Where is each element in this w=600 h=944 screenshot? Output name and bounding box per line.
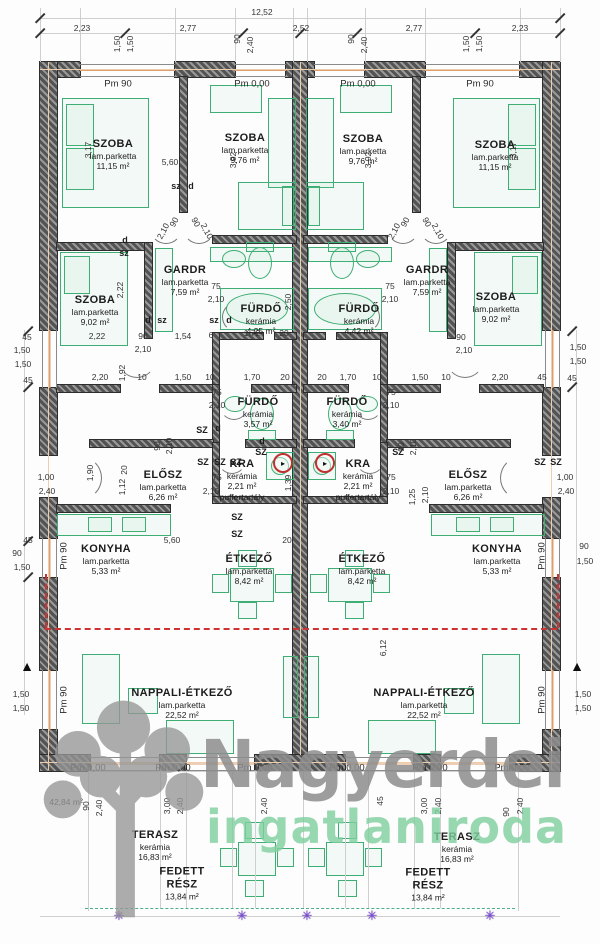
layer-tag: d (122, 235, 128, 245)
room-area: 8,42 m² (225, 577, 272, 587)
room-label: FÜRDŐkerámia3,40 m² (326, 396, 367, 430)
room-name: SZOBA (222, 132, 269, 145)
dimension-label: 5,60 (162, 157, 179, 167)
room-material: kerámia (336, 471, 381, 481)
dimension-label: 2,40 (245, 37, 255, 54)
window (80, 64, 175, 77)
furniture (88, 517, 112, 532)
room-material: lam.parketta (472, 556, 522, 566)
wall-segment (448, 243, 543, 250)
layer-tag: d (215, 423, 221, 433)
layer-tag: SZ (231, 512, 243, 522)
room-name: SZOBA (72, 294, 119, 307)
room-material: lam.parketta (445, 482, 492, 492)
dimension-label: 1,92 (117, 365, 127, 382)
dimension-label: 5,60 (164, 535, 181, 545)
room-label: GARDRlam.parketta7,59 m² (404, 264, 451, 298)
dimension-label: 2,10 (164, 438, 174, 455)
dimension-label: 90 (456, 332, 465, 342)
dimension-label: 1,00 (38, 472, 55, 482)
wall-segment (304, 440, 354, 447)
furniture (431, 514, 545, 536)
extension-line (40, 18, 560, 19)
dimension-label: 1,12 (117, 479, 127, 496)
dimension-label: 75 (385, 281, 394, 291)
furniture (268, 98, 296, 188)
fixture (330, 247, 354, 279)
furniture (283, 656, 298, 718)
furniture (338, 880, 357, 897)
room-name: SZOBA (472, 139, 519, 152)
wall-segment (57, 243, 152, 250)
dimension-label: 20 (280, 372, 289, 382)
furniture (326, 430, 354, 440)
room-material: lam.parketta (140, 482, 187, 492)
wall-segment (381, 333, 387, 388)
dimension-label: 1,50 (474, 36, 484, 53)
survey-star-icon: ✳ (237, 908, 248, 924)
level-mark: Pm 90 (466, 79, 493, 90)
wall-segment (252, 385, 296, 392)
room-label: FEDETT RÉSZ13,84 m² (405, 867, 450, 904)
room-area: 2,21 m² (220, 482, 265, 492)
room-material: kerámia (237, 409, 278, 419)
room-label: SZOBAlam.parketta11,15 m² (472, 139, 519, 173)
dimension-label: 2,10 (383, 400, 400, 410)
furniture (57, 514, 171, 536)
dimension-label: 20 (119, 465, 129, 474)
boundary-dashed-line (45, 628, 557, 630)
room-label: SZOBAlam.parketta9,76 m² (340, 133, 387, 167)
wall-segment (413, 77, 420, 212)
dimension-label: 2,10 (135, 344, 152, 354)
room-label: SZOBAlam.parketta9,02 m² (473, 291, 520, 325)
room-material: lam.parketta (473, 304, 520, 314)
room-area: 13,84 m² (405, 893, 450, 903)
room-area: 4,25 m² (240, 327, 281, 337)
room-name: FÜRDŐ (240, 303, 281, 316)
room-material: lam.parketta (81, 556, 131, 566)
dimension-label: 2,22 (89, 331, 106, 341)
room-area: 6,26 m² (140, 493, 187, 503)
level-mark: Pm 90 (59, 542, 70, 569)
room-material: lam.parketta (472, 152, 519, 162)
room-area: 3,40 m² (326, 420, 367, 430)
boundary-dashed-line (557, 574, 559, 628)
room-name: GARDR (162, 264, 209, 277)
room-material: lam.parketta (72, 307, 119, 317)
room-area: 8,42 m² (338, 577, 385, 587)
furniture (456, 517, 480, 532)
axis-line (48, 62, 49, 770)
dimension-label: 10 (205, 372, 214, 382)
dimension-label: 1,50 (112, 36, 122, 53)
room-label: KRAkerámia2,21 m²puffertartály (336, 458, 381, 502)
extension-line (80, 8, 81, 62)
wall-segment (180, 77, 187, 212)
room-material: lam.parketta (162, 277, 209, 287)
room-area: 7,59 m² (162, 288, 209, 298)
room-material: lam.parketta (373, 700, 474, 710)
window (545, 330, 560, 388)
wall-segment (246, 440, 296, 447)
dimension-label: 2,50 (283, 294, 293, 311)
dimension-label: 1,50 (412, 372, 429, 382)
dimension-label: 90 (346, 34, 356, 43)
room-material: kerámia (326, 409, 367, 419)
room-area: 9,76 m² (340, 157, 387, 167)
dimension-label: 90 (232, 34, 242, 43)
room-area: 4,42 m² (338, 327, 379, 337)
dimension-label: 1,50 (575, 689, 592, 699)
room-name: ÉTKEZŐ (338, 553, 385, 566)
window (42, 538, 57, 578)
boiler-circle-icon: ▸ (315, 453, 335, 473)
layer-tag: SZ (231, 529, 243, 539)
dimension-label: 20 (317, 372, 326, 382)
dimension-label: 2,10 (383, 486, 400, 496)
room-area: 5,33 m² (472, 567, 522, 577)
dimension-label: 1,00 (557, 472, 574, 482)
fixture (248, 247, 272, 279)
dimension-label: 45 (22, 332, 31, 342)
dimension-label: 2,10 (408, 439, 418, 456)
room-name: KONYHA (81, 543, 131, 556)
room-material: kerámia (240, 316, 281, 326)
furniture (512, 256, 538, 294)
watermark-subtitle-text: ingatlaniroda (206, 800, 567, 854)
fixture (356, 250, 380, 268)
room-material: lam.parketta (340, 146, 387, 156)
dimension-label: 1,50 (125, 36, 135, 53)
layer-tag: SZ (255, 447, 267, 457)
room-name: FEDETT RÉSZ (405, 867, 450, 893)
extension-line (520, 8, 521, 62)
axis-line (300, 62, 301, 755)
window (314, 64, 365, 77)
dimension-label: 10 (372, 372, 381, 382)
extension-line (425, 8, 426, 62)
room-extra: puffertartály (336, 492, 381, 502)
room-name: ÉTKEZŐ (225, 553, 272, 566)
floor-plan: Nagyerdei ingatlaniroda SZOBAlam.parkett… (0, 0, 600, 944)
dimension-label: 2,10 (209, 400, 226, 410)
dimension-label: 2,77 (180, 23, 197, 33)
dimension-label: 2,23 (512, 23, 529, 33)
dimension-label: 12,52 (251, 7, 272, 17)
dimension-label: 2,10 (420, 487, 430, 504)
dimension-label: 2,10 (208, 294, 225, 304)
dimension-label: 1,50 (15, 359, 32, 369)
room-area: 3,57 m² (237, 420, 278, 430)
furniture (306, 98, 334, 188)
dimension-label: 45 (23, 535, 32, 545)
room-area: 9,76 m² (222, 156, 269, 166)
dimension-label: 1,50 (14, 562, 31, 572)
layer-tag: d (188, 181, 194, 191)
survey-star-icon: ✳ (485, 908, 496, 924)
furniture (490, 517, 514, 532)
room-name: ELŐSZ (140, 469, 187, 482)
dimension-label: 1,50 (14, 345, 31, 355)
room-area: 11,15 m² (90, 162, 137, 172)
dimension-label: 1,90 (85, 465, 95, 482)
extension-line (307, 8, 308, 62)
dimension-label: 75 (212, 387, 221, 397)
furniture (122, 517, 146, 532)
layer-tag: sz (157, 315, 167, 325)
dimension-label: 10 (441, 372, 450, 382)
dimension-label: 75 (211, 281, 220, 291)
room-area: 9,02 m² (473, 315, 520, 325)
dimension-label: 45 (537, 372, 546, 382)
fixture (222, 250, 246, 268)
room-label: SZOBAlam.parketta11,15 m² (90, 138, 137, 172)
dimension-label: 2,77 (406, 23, 423, 33)
layer-tag: sz (119, 248, 129, 258)
extension-line (175, 8, 176, 62)
wall-segment (304, 385, 348, 392)
wall-segment (480, 385, 543, 392)
layer-tag: d (259, 436, 265, 446)
extension-line (365, 8, 366, 62)
furniture (304, 656, 319, 718)
layer-tag: SZ (392, 447, 404, 457)
dimension-label: 2,20 (92, 372, 109, 382)
watermark-tree-logo (26, 693, 221, 921)
extension-line (293, 8, 294, 62)
room-name: ELŐSZ (445, 469, 492, 482)
level-triangle-icon: ▲ (20, 658, 34, 674)
dimension-label: 2,40 (39, 486, 56, 496)
room-name: FÜRDŐ (237, 396, 278, 409)
room-name: SZOBA (90, 138, 137, 151)
dimension-label: 1,50 (575, 703, 592, 713)
layer-tag: SZ (550, 457, 562, 467)
room-material: kerámia (220, 471, 265, 481)
furniture (310, 574, 327, 593)
room-label: ÉTKEZŐlam.parketta8,42 m² (225, 553, 272, 587)
level-mark: Pm 0,00 (234, 79, 269, 90)
dimension-label: 2,23 (74, 23, 91, 33)
dimension-label: 1,25 (407, 489, 417, 506)
dimension-label: 1,39 (283, 475, 293, 492)
dimension-label: 2,20 (492, 372, 509, 382)
layer-tag: sz (171, 181, 181, 191)
dimension-label: 20 (282, 535, 291, 545)
wall-segment (57, 505, 170, 512)
room-area: 22,52 m² (373, 711, 474, 721)
dimension-label: 1,50 (175, 372, 192, 382)
room-name: NAPPALI-ÉTKEZŐ (373, 687, 474, 700)
level-mark: Pm 90 (537, 542, 548, 569)
dimension-label: 2,40 (558, 486, 575, 496)
room-name: SZOBA (473, 291, 520, 304)
room-name: FÜRDŐ (326, 396, 367, 409)
dimension-label: 6,12 (378, 640, 388, 657)
dimension-label: 10 (137, 372, 146, 382)
room-material: lam.parketta (404, 277, 451, 287)
room-label: KONYHAlam.parketta5,33 m² (472, 543, 522, 577)
room-label: ELŐSZlam.parketta6,26 m² (445, 469, 492, 503)
layer-tag: sz (209, 315, 219, 325)
layer-tag: SZ (197, 457, 209, 467)
room-material: lam.parketta (90, 151, 137, 161)
room-name: KONYHA (472, 543, 522, 556)
room-material: lam.parketta (222, 145, 269, 155)
survey-star-icon: ✳ (302, 908, 313, 924)
room-label: FÜRDŐkerámia4,25 m² (240, 303, 281, 337)
room-area: 2,21 m² (336, 482, 381, 492)
door-swing-arc (58, 456, 102, 500)
level-mark: Pm 0,00 (340, 79, 375, 90)
room-label: ÉTKEZŐlam.parketta8,42 m² (338, 553, 385, 587)
dimension-label: 45 (567, 373, 576, 383)
room-area: 7,59 m² (404, 288, 451, 298)
room-label: KONYHAlam.parketta5,33 m² (81, 543, 131, 577)
room-label: FÜRDŐkerámia4,42 m² (338, 303, 379, 337)
dimension-label: 90 (152, 441, 162, 450)
furniture (64, 256, 90, 294)
furniture (282, 186, 294, 226)
room-label: NAPPALI-ÉTKEZŐlam.parketta22,52 m² (373, 687, 474, 721)
level-mark: Pm 90 (104, 79, 131, 90)
wall-segment (160, 385, 213, 392)
layer-tag: SZ (196, 425, 208, 435)
dimension-label: 1,50 (570, 356, 587, 366)
dimension-label: 45 (23, 375, 32, 385)
dimension-label: 1,50 (570, 342, 587, 352)
layer-tag: d (226, 315, 232, 325)
room-label: GARDRlam.parketta7,59 m² (162, 264, 209, 298)
room-material: lam.parketta (225, 566, 272, 576)
dimension-label: 75 (386, 472, 395, 482)
dimension-label: 90 (12, 548, 21, 558)
room-label: SZOBAlam.parketta9,76 m² (222, 132, 269, 166)
room-area: 9,02 m² (72, 318, 119, 328)
window (425, 64, 520, 77)
room-label: FÜRDŐkerámia3,57 m² (237, 396, 278, 430)
dimension-label: 2,52 (293, 23, 310, 33)
wall-segment (430, 505, 543, 512)
dimension-label: 1,54 (175, 331, 192, 341)
boiler-circle-icon: ▸ (273, 453, 293, 473)
room-name: KRA (220, 458, 265, 471)
dimension-label: 2,40 (359, 37, 369, 54)
dimension-label: 2,10 (456, 345, 473, 355)
axis-line (551, 62, 552, 770)
dimension-label: 90 (138, 331, 147, 341)
room-material: kerámia (338, 316, 379, 326)
watermark-brand-text: Nagyerdei (200, 726, 564, 803)
dimension-label: 1,50 (461, 36, 471, 53)
wall-segment (57, 385, 120, 392)
room-area: 11,15 m² (472, 163, 519, 173)
furniture (275, 574, 292, 593)
furniture (345, 602, 364, 619)
furniture (482, 654, 520, 724)
dimension-label: 1,50 (577, 556, 594, 566)
room-label: SZOBAlam.parketta9,02 m² (72, 294, 119, 328)
room-area: 6,26 m² (445, 493, 492, 503)
level-triangle-icon: ▲ (570, 658, 584, 674)
dimension-label: 75 (386, 387, 395, 397)
room-name: FÜRDŐ (338, 303, 379, 316)
room-area: 16,83 m² (434, 855, 480, 865)
room-name: KRA (336, 458, 381, 471)
level-mark: Pm 90 (537, 686, 548, 713)
layer-tag: d (145, 315, 151, 325)
dimension-label: 2,10 (382, 294, 399, 304)
dimension-label: 90 (579, 541, 588, 551)
room-label: KRAkerámia2,21 m²puffertartály (220, 458, 265, 502)
layer-tag: SZ (534, 457, 546, 467)
window (42, 330, 57, 388)
room-area: 5,33 m² (81, 567, 131, 577)
axis-line (40, 69, 560, 70)
room-label: ELŐSZlam.parketta6,26 m² (140, 469, 187, 503)
survey-star-icon: ✳ (367, 908, 378, 924)
furniture (308, 186, 320, 226)
window (235, 64, 286, 77)
room-name: GARDR (404, 264, 451, 277)
furniture (238, 602, 257, 619)
room-extra: puffertartály (220, 492, 265, 502)
room-material: lam.parketta (338, 566, 385, 576)
wall-segment (304, 333, 325, 339)
dimension-label: 2,10 (203, 486, 220, 496)
dimension-label: 6 (209, 330, 214, 340)
dimension-label: 1,70 (340, 372, 357, 382)
dimension-label: 1,70 (244, 372, 261, 382)
room-name: SZOBA (340, 133, 387, 146)
boundary-dashed-line (45, 574, 47, 628)
